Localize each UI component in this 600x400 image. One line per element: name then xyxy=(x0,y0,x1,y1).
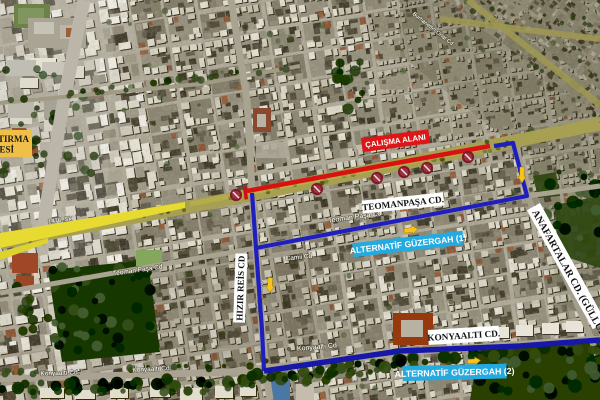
svg-text:HASTANESİ: HASTANESİ xyxy=(0,145,14,155)
svg-text:ARAŞTIRMA: ARAŞTIRMA xyxy=(0,134,29,144)
svg-text:Konyaaltı Cd.: Konyaaltı Cd. xyxy=(40,369,79,377)
